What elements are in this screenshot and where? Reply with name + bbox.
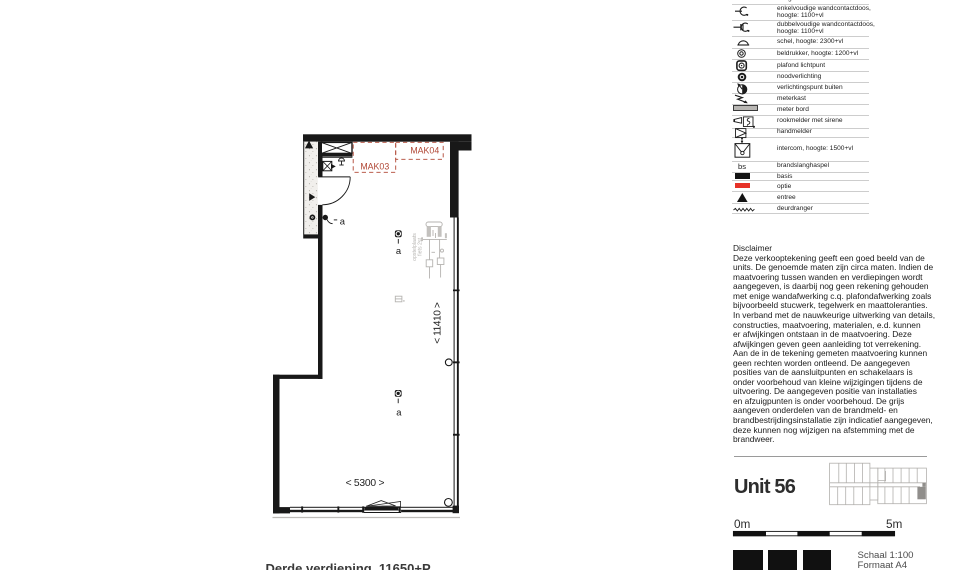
svg-text:fiets 2st: fiets 2st: [418, 238, 424, 256]
svg-text:MAK03: MAK03: [360, 162, 389, 172]
svg-text:a: a: [396, 406, 402, 417]
svg-text:< 5300 >: < 5300 >: [346, 478, 385, 489]
svg-text:a: a: [340, 215, 346, 226]
svg-text:MAK04: MAK04: [410, 146, 439, 156]
svg-text:a: a: [396, 245, 402, 256]
svg-text:< 11410 >: < 11410 >: [433, 302, 444, 344]
